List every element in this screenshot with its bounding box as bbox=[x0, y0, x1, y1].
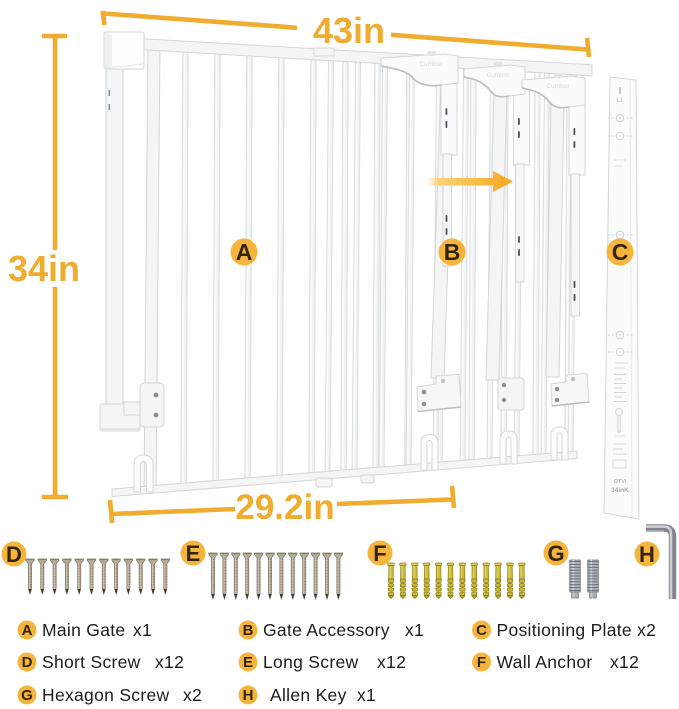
svg-text:D: D bbox=[22, 654, 33, 671]
svg-text:A: A bbox=[236, 239, 253, 265]
svg-text:x2: x2 bbox=[183, 685, 202, 705]
svg-text:C: C bbox=[612, 239, 629, 265]
svg-text:x12: x12 bbox=[155, 652, 184, 672]
svg-text:Allen Key: Allen Key bbox=[270, 685, 347, 705]
svg-text:G: G bbox=[21, 687, 33, 704]
svg-text:x1: x1 bbox=[405, 620, 424, 640]
svg-text:Long Screw: Long Screw bbox=[263, 652, 358, 672]
svg-text:43in: 43in bbox=[313, 10, 385, 51]
svg-text:34inK: 34inK bbox=[611, 487, 629, 494]
svg-text:34in: 34in bbox=[8, 248, 80, 289]
svg-text:F: F bbox=[373, 541, 386, 566]
svg-text:Short Screw: Short Screw bbox=[42, 652, 141, 672]
svg-text:x12: x12 bbox=[377, 652, 406, 672]
svg-text:Hexagon Screw: Hexagon Screw bbox=[42, 685, 169, 705]
svg-text:H: H bbox=[639, 542, 655, 567]
svg-text:x1: x1 bbox=[133, 620, 152, 640]
svg-text:F: F bbox=[477, 654, 486, 671]
svg-text:B: B bbox=[243, 622, 254, 639]
svg-text:Cumbor: Cumbor bbox=[546, 83, 570, 90]
svg-text:Positioning Plate x2: Positioning Plate x2 bbox=[497, 620, 657, 640]
svg-text:H: H bbox=[243, 687, 254, 704]
svg-text:E: E bbox=[243, 654, 253, 671]
svg-text:x12: x12 bbox=[610, 652, 639, 672]
svg-text:Cumbor: Cumbor bbox=[419, 61, 443, 68]
svg-text:A: A bbox=[22, 622, 33, 639]
svg-text:Main Gate: Main Gate bbox=[42, 620, 125, 640]
svg-text:B: B bbox=[444, 239, 461, 265]
svg-text:OTVI: OTVI bbox=[614, 479, 627, 485]
svg-text:29.2in: 29.2in bbox=[235, 488, 334, 527]
svg-text:C: C bbox=[476, 622, 487, 639]
svg-text:L1: L1 bbox=[617, 98, 624, 104]
svg-text:Wall Anchor: Wall Anchor bbox=[497, 652, 593, 672]
svg-text:Gate Accessory: Gate Accessory bbox=[263, 620, 390, 640]
svg-text:Cumbor: Cumbor bbox=[486, 72, 510, 79]
svg-text:G: G bbox=[547, 541, 564, 566]
svg-text:E: E bbox=[186, 541, 201, 566]
svg-text:x1: x1 bbox=[357, 685, 376, 705]
svg-text:D: D bbox=[6, 542, 22, 567]
